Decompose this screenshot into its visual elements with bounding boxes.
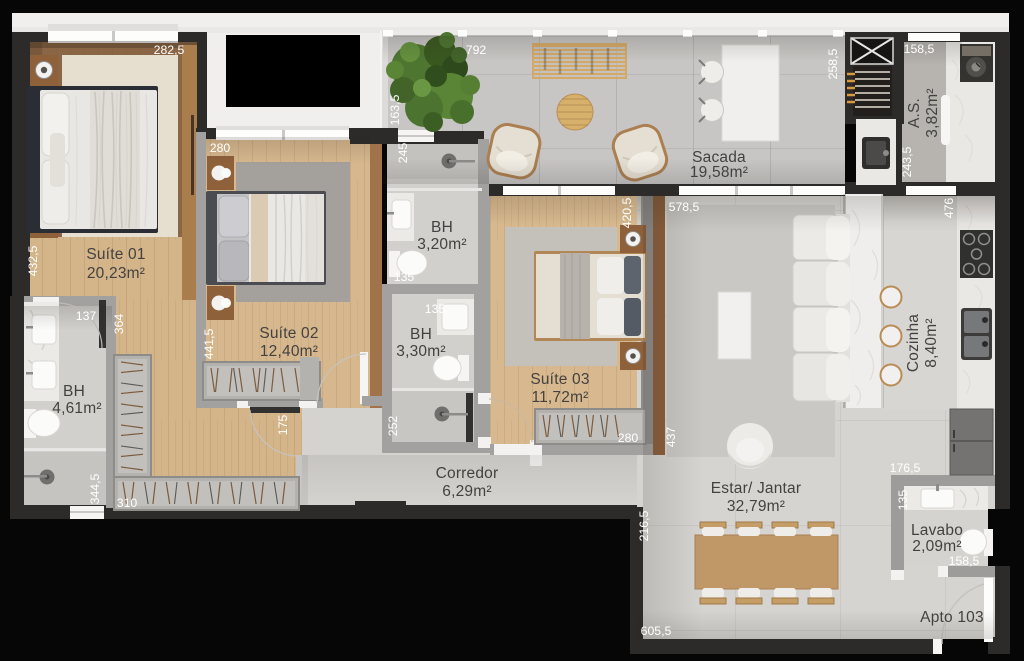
svg-text:4,61m²: 4,61m²	[52, 400, 101, 417]
svg-text:175: 175	[276, 415, 290, 436]
svg-text:Suíte 03: Suíte 03	[530, 371, 589, 388]
svg-text:3,20m²: 3,20m²	[417, 236, 466, 253]
svg-text:280: 280	[618, 431, 639, 445]
svg-text:437: 437	[664, 427, 678, 448]
svg-text:258,5: 258,5	[826, 48, 840, 79]
svg-text:578,5: 578,5	[669, 200, 700, 214]
svg-text:605,5: 605,5	[641, 624, 672, 638]
svg-text:Suíte 02: Suíte 02	[259, 325, 318, 342]
svg-text:12,40m²: 12,40m²	[260, 343, 318, 360]
svg-text:344,5: 344,5	[88, 473, 102, 504]
svg-text:Apto 103: Apto 103	[920, 609, 984, 626]
svg-text:Cozinha: Cozinha	[905, 314, 922, 372]
svg-text:137: 137	[76, 309, 97, 323]
svg-text:135: 135	[896, 490, 910, 511]
svg-text:135: 135	[394, 270, 415, 284]
svg-text:Estar/ Jantar: Estar/ Jantar	[711, 480, 801, 497]
svg-text:252: 252	[386, 416, 400, 437]
svg-text:441,5: 441,5	[202, 328, 216, 359]
svg-text:11,72m²: 11,72m²	[531, 389, 588, 406]
svg-text:476: 476	[942, 198, 956, 219]
svg-text:BH: BH	[63, 383, 85, 400]
svg-text:176,5: 176,5	[890, 461, 921, 475]
svg-text:432,5: 432,5	[26, 245, 40, 276]
svg-text:A.S.: A.S.	[906, 98, 923, 128]
svg-text:280: 280	[210, 141, 231, 155]
svg-text:32,79m²: 32,79m²	[727, 498, 785, 515]
svg-text:158,5: 158,5	[904, 42, 935, 56]
svg-text:6,29m²: 6,29m²	[442, 483, 491, 500]
svg-text:20,23m²: 20,23m²	[87, 265, 145, 282]
svg-text:Corredor: Corredor	[436, 465, 499, 482]
svg-text:BH: BH	[410, 326, 432, 343]
svg-text:310: 310	[117, 496, 138, 510]
svg-text:245: 245	[396, 143, 410, 164]
svg-text:364: 364	[112, 314, 126, 335]
svg-text:2,09m²: 2,09m²	[912, 538, 961, 555]
svg-text:Lavabo: Lavabo	[911, 522, 963, 539]
svg-text:158,5: 158,5	[949, 554, 980, 568]
svg-text:135: 135	[425, 302, 446, 316]
svg-text:163,5: 163,5	[388, 94, 402, 125]
svg-text:282,5: 282,5	[154, 43, 185, 57]
svg-text:3,30m²: 3,30m²	[396, 343, 445, 360]
svg-text:243,5: 243,5	[900, 146, 914, 177]
svg-text:Suíte 01: Suíte 01	[86, 246, 145, 263]
svg-text:792: 792	[466, 43, 487, 57]
svg-text:420,5: 420,5	[620, 197, 634, 228]
svg-text:3,82m²: 3,82m²	[924, 88, 941, 137]
svg-text:BH: BH	[431, 219, 453, 236]
svg-text:19,58m²: 19,58m²	[690, 164, 748, 181]
svg-text:216,5: 216,5	[637, 510, 651, 541]
svg-text:8,40m²: 8,40m²	[923, 318, 940, 367]
